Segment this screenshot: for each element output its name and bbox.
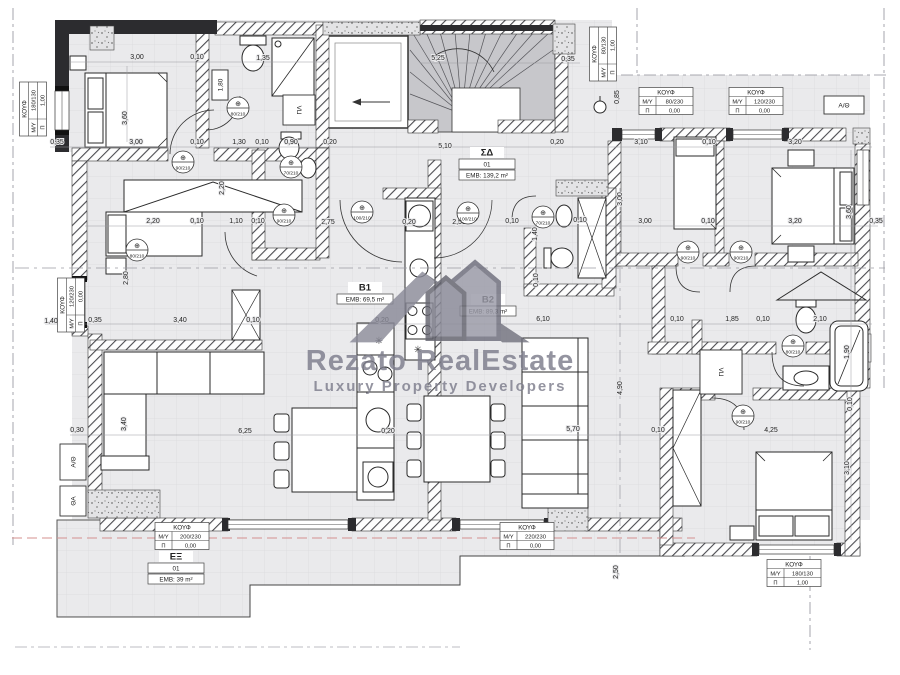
wardrobe-small-left [232,290,260,340]
svg-text:Μ/Υ: Μ/Υ [158,535,168,541]
svg-text:90/210: 90/210 [734,256,749,262]
svg-text:ΠΛ: ΠΛ [297,105,304,115]
svg-text:EMB: 139,2 m²: EMB: 139,2 m² [466,173,508,180]
door-label: ⊕70/210 [280,156,302,178]
svg-text:Π: Π [735,109,739,115]
dimension-label: 0,10 [251,218,265,225]
svg-text:90/210: 90/210 [176,166,191,172]
svg-text:Μ/Υ: Μ/Υ [70,318,76,328]
dimension-label: 3,00 [129,139,143,146]
dimension-label: 0,10 [190,218,204,225]
svg-text:Μ/Υ: Μ/Υ [732,100,742,106]
svg-text:B1: B1 [359,283,372,294]
svg-text:01: 01 [483,162,491,169]
dimension-label: 3,20 [788,139,802,146]
svg-text:0,00: 0,00 [530,544,541,550]
svg-text:180/130: 180/130 [792,572,813,578]
svg-text:90/210: 90/210 [681,256,696,262]
opening-table: ΚΟΥΦΜ/Υ180/130Π1,00 [20,82,47,136]
terrace-floor [57,520,660,617]
dimension-label: 3,00 [617,192,624,206]
svg-text:Π: Π [773,581,777,587]
equipment-label: ΘΑ [60,486,86,516]
dimension-label: 6,10 [536,316,550,323]
svg-text:⊕: ⊕ [740,409,746,416]
svg-text:ΚΟΥΦ: ΚΟΥΦ [518,525,536,532]
equipment-label: 1,80 [212,70,228,100]
dimension-label: 0,10 [533,273,540,287]
door-label: ⊕90/210 [732,405,754,427]
svg-text:Α/Θ: Α/Θ [838,103,849,110]
equipment-label: Α/Θ [60,444,86,480]
dimension-label: 0,90 [284,139,298,146]
svg-text:Μ/Υ: Μ/Υ [770,572,780,578]
svg-text:70/210: 70/210 [284,171,299,177]
dimension-label: 0,10 [651,427,665,434]
svg-text:Μ/Υ: Μ/Υ [642,100,652,106]
svg-text:70/210: 70/210 [536,221,551,227]
dimension-label: 0,10 [701,218,715,225]
dimension-label: 0,10 [756,316,770,323]
svg-text:Π: Π [79,321,85,325]
svg-text:Π: Π [506,544,510,550]
dimension-label: 3,00 [638,218,652,225]
svg-text:0,00: 0,00 [669,109,680,115]
svg-text:Π: Π [611,70,617,74]
svg-text:⊕: ⊕ [134,243,140,250]
dimension-label: 1,85 [725,316,739,323]
staircase [408,28,555,132]
svg-text:ΚΟΥΦ: ΚΟΥΦ [592,45,599,63]
dimension-label: 3,10 [634,139,648,146]
svg-text:80/130: 80/130 [602,37,608,55]
svg-text:ΚΟΥΦ: ΚΟΥΦ [22,100,29,118]
dimension-label: 0,20 [402,219,416,226]
svg-text:⊕: ⊕ [288,160,294,167]
equipment-label: ΠΛ [700,350,742,394]
equipment-label: ΠΛ [283,95,315,125]
svg-text:200/230: 200/230 [180,535,201,541]
dimension-label: 3,00 [130,54,144,61]
svg-text:ΚΟΥΦ: ΚΟΥΦ [60,296,67,314]
dimension-label: 0,20 [381,428,395,435]
svg-text:⊕: ⊕ [359,205,365,212]
dimension-label: 0,35 [561,56,575,63]
svg-text:90/210: 90/210 [277,219,292,225]
dimension-label: 2,20 [219,181,226,195]
svg-text:80/210: 80/210 [130,254,145,260]
door-label: ⊕70/210 [532,206,554,228]
door-label: ⊕80/210 [227,97,249,119]
fixture-glyph: ✳ [414,345,422,356]
nightstand [70,56,86,70]
wardrobe-peaked-left [124,180,302,212]
dimension-label: 0,10 [702,139,716,146]
dimension-label: 0,10 [190,54,204,61]
svg-text:1,80: 1,80 [218,78,225,91]
door-label: ⊕80/210 [782,335,804,357]
bed-single-topright [674,137,716,229]
dimension-label: 0,10 [190,139,204,146]
opening-table: ΚΟΥΦΜ/Υ180/130Π1,00 [767,560,821,587]
svg-text:EMB: 69,5 m²: EMB: 69,5 m² [346,297,385,304]
dimension-label: 0,35 [88,317,102,324]
sink-icon [300,158,316,178]
dimension-label: 0,10 [573,217,587,224]
dimension-label: 0,85 [614,90,621,104]
dimension-label: 2,75 [321,219,335,226]
opening-table: ΚΟΥΦΜ/Υ220/230Π0,00 [500,523,554,550]
dimension-label: 3,20 [788,218,802,225]
dimension-label: 1,40 [44,318,58,325]
dimension-label: 3,60 [846,205,853,219]
opening-table: ΚΟΥΦΜ/Υ120/230Π0,00 [58,278,85,332]
svg-text:1,00: 1,00 [797,581,808,587]
bed-master-topleft [85,73,167,147]
dimension-label: 0,30 [70,427,84,434]
dimension-label: 0,10 [246,317,260,324]
dimension-label: 1,40 [532,227,539,241]
dimension-label: 3,10 [844,461,851,475]
svg-text:01: 01 [172,566,180,573]
svg-text:ΕΞ: ΕΞ [170,552,182,563]
svg-text:⊕: ⊕ [281,208,287,215]
door-label: ⊕90/210 [273,204,295,226]
svg-text:⊕: ⊕ [790,339,796,346]
fixture-glyph: ✳ [375,336,383,347]
svg-text:Α/Θ: Α/Θ [71,456,78,467]
dimension-label: 0,10 [670,316,684,323]
floor-plan-drawing: 3,000,101,355,250,353,600,850,353,000,10… [0,0,900,675]
dimension-label: 0,35 [869,218,883,225]
door-label: ⊕90/210 [172,151,194,173]
wardrobe-bottomright [673,390,701,506]
svg-text:ΠΛ: ΠΛ [719,367,726,377]
svg-text:⊕: ⊕ [235,101,241,108]
svg-text:Μ/Υ: Μ/Υ [503,535,513,541]
svg-text:Π: Π [161,544,165,550]
svg-text:ΚΟΥΦ: ΚΟΥΦ [657,90,675,97]
dimension-label: 0,20 [550,139,564,146]
svg-text:Μ/Υ: Μ/Υ [32,122,38,132]
dimension-label: 3,40 [173,317,187,324]
svg-text:Π: Π [41,125,47,129]
dimension-label: 3,40 [121,417,128,431]
svg-text:B2: B2 [482,295,494,306]
opening-table: ΚΟΥΦΜ/Υ80/230Π0,00 [639,88,693,115]
svg-text:ΣΔ: ΣΔ [481,148,494,159]
svg-text:⊕: ⊕ [180,155,186,162]
svg-text:ΚΟΥΦ: ΚΟΥΦ [173,525,191,532]
opening-table: ΚΟΥΦΜ/Υ120/230Π0,00 [729,88,783,115]
svg-text:ΚΟΥΦ: ΚΟΥΦ [747,90,765,97]
svg-text:0,00: 0,00 [79,291,85,302]
door-label: ⊕80/210 [126,239,148,261]
door-label: ⊕100/210 [351,201,373,223]
svg-text:0,00: 0,00 [185,544,196,550]
svg-text:0,00: 0,00 [759,109,770,115]
svg-text:1,00: 1,00 [41,95,47,106]
svg-text:80/210: 80/210 [786,350,801,356]
floor-plan-page: 3,000,101,355,250,353,600,850,353,000,10… [0,0,900,675]
dimension-label: 4,25 [764,427,778,434]
svg-text:⊕: ⊕ [540,210,546,217]
dimension-label: 4,90 [617,381,624,395]
dimension-label: 0,35 [50,139,64,146]
dimension-label: 5,70 [566,426,580,433]
dimension-label: 2,80 [123,271,130,285]
svg-text:⊕: ⊕ [738,245,744,252]
opening-table: ΚΟΥΦΜ/Υ200/230Π0,00 [155,523,209,550]
svg-text:Μ/Υ: Μ/Υ [602,67,608,77]
svg-text:80/230: 80/230 [666,100,684,106]
svg-text:EMB: 89,3 m²: EMB: 89,3 m² [469,309,508,316]
door-label: ⊕90/210 [730,241,752,263]
dimension-label: 1,10 [229,218,243,225]
dimension-label: 1,35 [256,55,270,62]
dimension-label: 2,50 [613,565,620,579]
dimension-label: 0,20 [323,139,337,146]
sofa-b2 [522,338,588,508]
svg-text:⊕: ⊕ [465,206,471,213]
kitchen-counter-b1 [357,323,394,500]
svg-text:90/210: 90/210 [736,420,751,426]
dimension-label: 5,25 [431,55,445,62]
dimension-label: 3,60 [122,111,129,125]
svg-text:ΘΑ: ΘΑ [71,496,78,506]
svg-text:Π: Π [645,109,649,115]
dimension-label: 2,10 [813,316,827,323]
dimension-label: 0,20 [375,317,389,324]
svg-text:100/210: 100/210 [459,217,477,223]
dimension-label: 1,30 [232,139,246,146]
dimension-label: 1,90 [844,345,851,359]
equipment-label: Α/Θ [824,96,864,114]
dimension-label: 0,10 [847,397,854,411]
dimension-label: 5,10 [438,143,452,150]
svg-text:180/130: 180/130 [32,90,38,111]
svg-text:EMB: 39 m²: EMB: 39 m² [159,577,192,584]
closet-b2 [578,198,606,278]
svg-text:120/230: 120/230 [70,286,76,307]
dimension-label: 0,10 [255,139,269,146]
door-label: ⊕90/210 [677,241,699,263]
dimension-label: 6,25 [238,428,252,435]
svg-text:ΚΟΥΦ: ΚΟΥΦ [785,562,803,569]
door-label: ⊕100/210 [457,202,479,224]
svg-text:80/210: 80/210 [231,112,246,118]
svg-text:100/210: 100/210 [353,216,371,222]
dimension-label: 2,20 [146,218,160,225]
svg-text:1,00: 1,00 [611,40,617,51]
elevator [328,36,408,128]
svg-text:⊕: ⊕ [685,245,691,252]
dimension-label: 0,10 [505,218,519,225]
svg-text:220/230: 220/230 [525,535,546,541]
svg-text:120/230: 120/230 [754,100,775,106]
opening-table: ΚΟΥΦΜ/Υ80/130Π1,00 [590,27,617,81]
